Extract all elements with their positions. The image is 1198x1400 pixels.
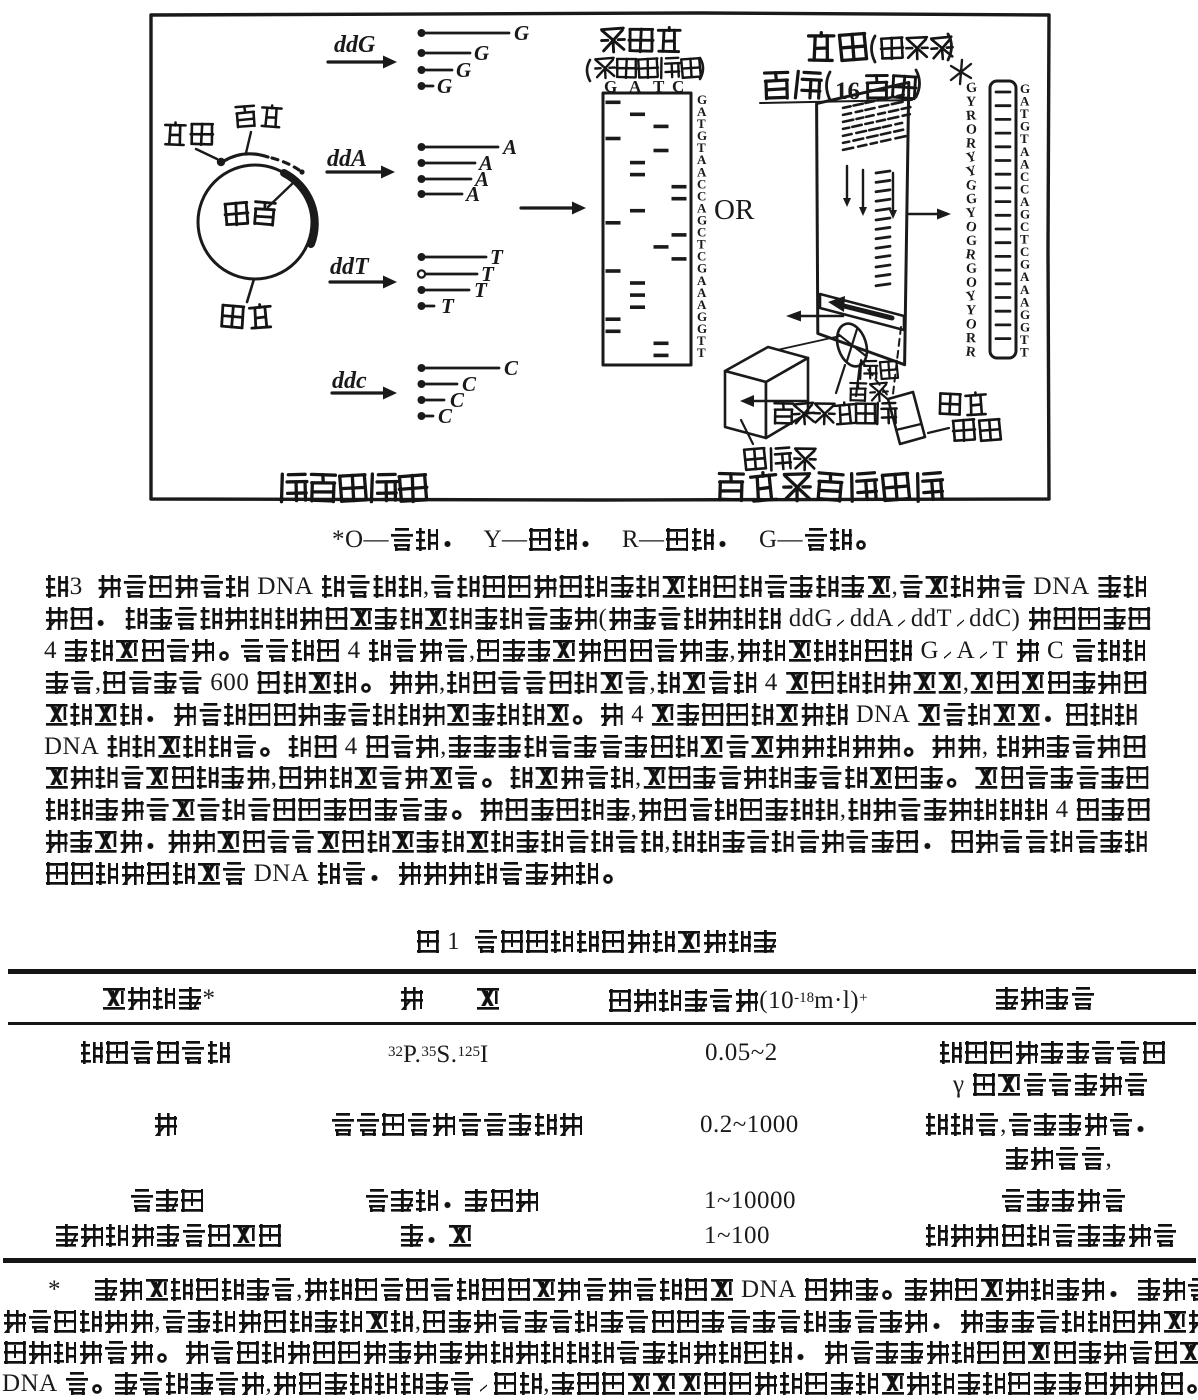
svg-text:G: G bbox=[514, 21, 529, 45]
svg-text:G: G bbox=[456, 58, 471, 82]
svg-text:C: C bbox=[504, 356, 519, 380]
svg-text:ddc: ddc bbox=[332, 368, 367, 394]
svg-text:T: T bbox=[441, 294, 455, 318]
svg-text:ddT: ddT bbox=[330, 254, 370, 280]
svg-text:G: G bbox=[474, 41, 489, 65]
svg-text:C: C bbox=[462, 372, 477, 396]
svg-text:R: R bbox=[965, 345, 978, 361]
svg-text:T: T bbox=[1020, 345, 1029, 360]
svg-text:C: C bbox=[450, 388, 465, 412]
svg-text:C: C bbox=[438, 404, 453, 428]
svg-text:ddA: ddA bbox=[327, 146, 367, 172]
svg-text:ddG: ddG bbox=[334, 32, 376, 58]
svg-text:OR: OR bbox=[714, 194, 755, 226]
svg-text:A: A bbox=[501, 135, 517, 159]
svg-text:T: T bbox=[697, 345, 706, 360]
svg-text:A: A bbox=[464, 182, 480, 206]
svg-text:T: T bbox=[474, 278, 488, 302]
svg-text:G: G bbox=[437, 74, 452, 98]
